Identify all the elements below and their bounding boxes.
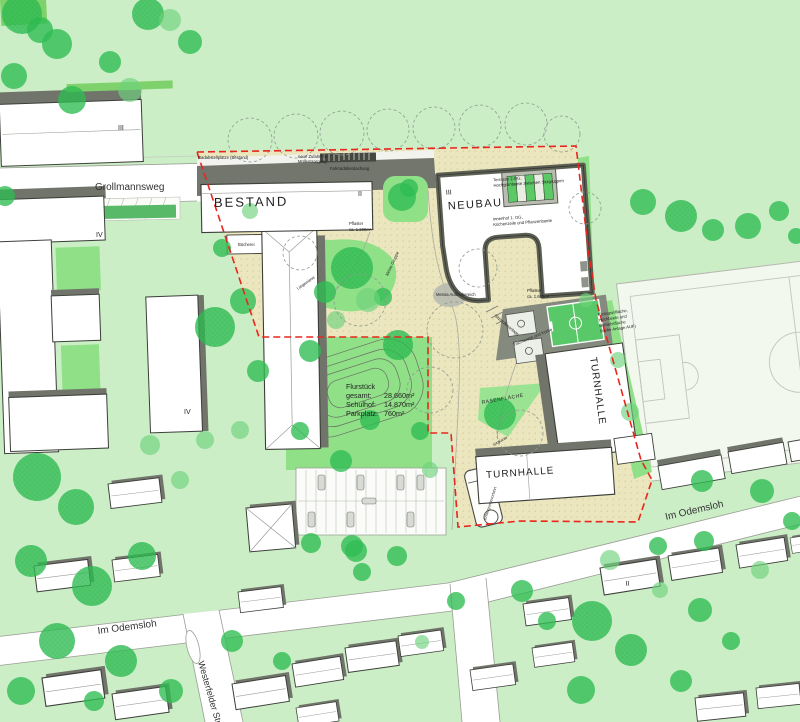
flurstueck-row-label: Parkplatz: <box>346 409 378 418</box>
flurstueck-row-value: 28.660m² <box>384 391 415 400</box>
floor-marker: II <box>358 191 362 198</box>
west-complex <box>0 186 115 454</box>
label-zufahrt2: Müllentsorgung <box>298 159 327 164</box>
flurstueck-heading: Flurstück <box>346 382 376 391</box>
label-pflaster-ost-wert: ca. 1.600m² <box>527 294 550 299</box>
label-pflaster-west: Pflaster <box>349 221 364 226</box>
label-pflaster-west-wert: ca. 1.200m² <box>349 227 372 232</box>
site-plan: III NEUBAU Terrasse 2.OG, Hochgrünbeete … <box>0 0 800 722</box>
site-plan-svg: III NEUBAU Terrasse 2.OG, Hochgrünbeete … <box>0 0 800 722</box>
label-bestand: BESTAND <box>214 194 289 210</box>
flurstueck-row-value: 760m² <box>384 409 405 418</box>
label-mensa: Mensa Außenbereich <box>436 292 476 297</box>
turnhalle-hall: TURNHALLE <box>475 439 615 503</box>
flurstueck-row-label: Schulhof: <box>346 400 376 409</box>
floor-marker: III <box>118 125 124 132</box>
floor-marker: III <box>446 189 452 196</box>
flurstueck-row-value: 14.870m² <box>384 400 415 409</box>
flurstueck-row-label: gesamt: <box>346 391 372 400</box>
label-radabstell: Radabstellplätze (Bestand) <box>198 155 249 160</box>
floor-marker: IV <box>184 409 191 416</box>
label-grollmannsweg: Grollmannsweg <box>95 182 164 193</box>
shed <box>246 501 300 552</box>
label-pflaster-ost: Pflaster <box>527 288 542 293</box>
parking-lot <box>296 468 446 535</box>
label-fahrrad: Fahrradüberdachung <box>330 166 370 171</box>
floor-marker: IV <box>96 232 103 239</box>
label-buecherei: Bücherei <box>238 242 255 247</box>
